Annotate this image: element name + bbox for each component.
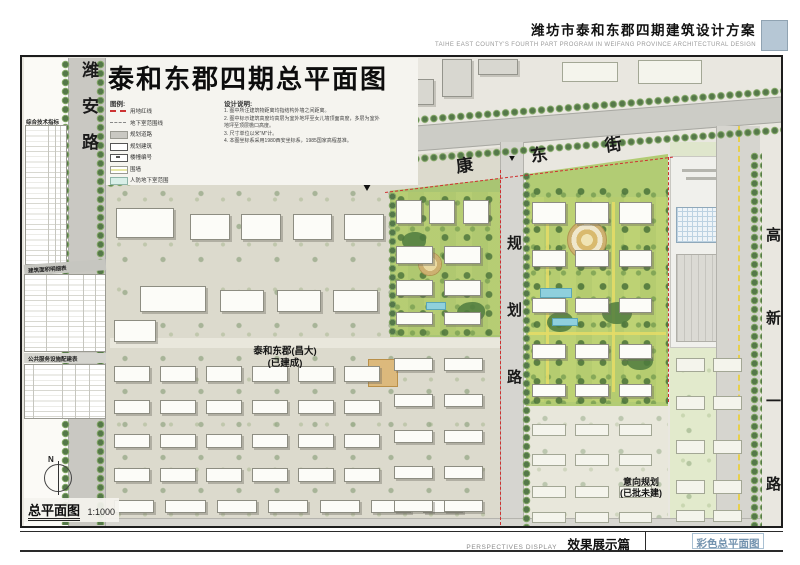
table-column-line — [46, 275, 47, 351]
building-footprint — [344, 400, 380, 414]
building-footprint — [140, 286, 206, 312]
building-footprint — [619, 454, 653, 466]
building-footprint — [114, 468, 150, 482]
building-number-icon — [110, 154, 128, 162]
notes-body: 1. 图中所注建筑物距离均指结构外墙之间距离。 2. 图中标示建筑高度均高层为室… — [224, 108, 384, 146]
building-footprint — [532, 424, 566, 436]
building-footprint — [575, 202, 609, 224]
scale-name: 总平面图 — [28, 503, 80, 521]
building-footprint — [444, 358, 483, 371]
building-footprint — [333, 290, 377, 312]
building-footprint — [575, 424, 609, 436]
legend-item: 地下室范围线 — [110, 119, 220, 128]
building-footprint — [532, 486, 566, 498]
sheet-title: 泰和东郡四期总平面图 — [108, 59, 388, 96]
footer-sheet-name-box: 彩色总平面图 — [692, 533, 764, 549]
civil-defense-icon — [110, 177, 128, 185]
building-footprint — [713, 510, 742, 522]
building-footprint — [160, 468, 196, 482]
table1-indicators — [25, 125, 67, 265]
building-footprint — [478, 59, 518, 75]
legend-item: 人防地下室范围 — [110, 176, 220, 185]
road-label-guihua: 规划路 — [503, 235, 524, 436]
building-footprint — [394, 358, 433, 371]
building-footprint — [532, 298, 566, 313]
building-footprint — [532, 384, 566, 397]
building-footprint — [320, 500, 360, 513]
building-footprint — [638, 60, 702, 84]
building-footprint — [532, 344, 566, 359]
basement-line-icon — [110, 122, 126, 123]
note-line: 3. 尺寸单位以米"M"计。 — [224, 131, 384, 139]
legend-item: 楼幢编号 — [110, 153, 220, 162]
building-footprint — [394, 394, 433, 407]
building-footprint — [444, 394, 483, 407]
building-footprint — [713, 396, 742, 410]
building-footprint — [676, 396, 705, 410]
planned-area-label: 意向规划 (已批未建) — [581, 477, 701, 500]
building-footprint — [298, 468, 334, 482]
wall-icon — [110, 166, 128, 174]
building-footprint — [619, 250, 653, 267]
building-footprint — [619, 344, 653, 359]
building-footprint — [220, 290, 264, 312]
building-footprint — [298, 434, 334, 448]
building-footprint — [619, 202, 653, 224]
drawing-sheet: 潍坊市泰和东郡四期建筑设计方案 TAIHE EAST COUNTY'S FOUR… — [0, 0, 800, 565]
note-line: 2. 图中标示建筑高度均高层为室外地坪至女儿墙顶面高度，多层为室外地坪至顶层檐口… — [224, 116, 384, 131]
road-label-weian: 潍安路 — [76, 61, 101, 169]
building-footprint — [344, 214, 384, 240]
note-line: 1. 图中所注建筑物距离均指结构外墙之间距离。 — [224, 108, 384, 116]
legend-item: 用地红线 — [110, 107, 220, 116]
compass-needle — [58, 461, 60, 495]
header-color-chip — [761, 20, 788, 51]
building-footprint — [394, 430, 433, 443]
building-footprint — [252, 400, 288, 414]
footer-series-cn: 效果展示篇 — [567, 538, 630, 552]
header-subtitle: TAIHE EAST COUNTY'S FOURTH PART PROGRAM … — [420, 42, 756, 48]
building-footprint — [619, 512, 653, 523]
building-footprint — [562, 62, 618, 82]
building-footprint — [206, 400, 242, 414]
building-footprint — [444, 430, 483, 443]
building-footprint — [114, 500, 154, 513]
compass: N — [44, 464, 72, 492]
building-footprint — [394, 466, 433, 479]
building-footprint — [116, 208, 174, 238]
table-column-line — [62, 365, 63, 418]
building-footprint — [293, 214, 333, 240]
building-footprint — [114, 400, 150, 414]
legend-item: 围墙 — [110, 165, 220, 174]
building-footprint — [532, 512, 566, 523]
table-column-line — [83, 275, 84, 351]
building-footprint — [396, 280, 433, 296]
building-footprint — [713, 440, 742, 454]
building-footprint — [575, 298, 609, 313]
building-footprint — [206, 434, 242, 448]
table-column-line — [60, 126, 61, 264]
building-footprint — [217, 500, 257, 513]
building-footprint — [298, 400, 334, 414]
building-footprint — [444, 500, 483, 512]
building-footprint — [676, 440, 705, 454]
building-footprint — [463, 200, 489, 224]
existing-estate-label: 泰和东郡(昌大) (已建成) — [205, 346, 365, 370]
footer-rule-top — [20, 531, 783, 532]
table2-areas — [24, 274, 106, 352]
legend-item: 规划道路 — [110, 130, 220, 139]
building-footprint — [575, 384, 609, 397]
road-label-gaoxin: 高新一路 — [762, 227, 783, 528]
table-column-line — [33, 365, 34, 418]
building-footprint — [277, 290, 321, 312]
building-footprint — [396, 312, 433, 325]
building-footprint — [442, 59, 472, 97]
building-footprint — [268, 500, 308, 513]
note-line: 4. 本图坐标系采用1980西安坐标系，1985国家高程基准。 — [224, 138, 384, 146]
scale-label: 总平面图 1:1000 — [24, 498, 119, 522]
plan-frame: 泰和东郡(昌大) (已建成) 意向规划 (已批未建) 主入口 潍安路 健康东街 … — [20, 55, 783, 528]
footer-divider — [645, 531, 646, 552]
building-footprint — [344, 468, 380, 482]
notes-title: 设计说明: — [224, 98, 252, 108]
building-footprint — [160, 366, 196, 382]
legend-item: 规划建筑 — [110, 142, 220, 151]
compass-north-label: N — [48, 455, 54, 464]
building-footprint — [713, 480, 742, 494]
building-footprint — [429, 200, 455, 224]
scale-ratio: 1:1000 — [87, 507, 115, 517]
building-footprint — [394, 500, 433, 512]
building-footprint — [444, 466, 483, 479]
building-footprint — [160, 400, 196, 414]
building-footprint — [532, 454, 566, 466]
building-footprint — [575, 344, 609, 359]
building-footprint — [165, 500, 205, 513]
planned-building-icon — [110, 143, 128, 151]
header-block: 潍坊市泰和东郡四期建筑设计方案 TAIHE EAST COUNTY'S FOUR… — [420, 19, 756, 48]
building-footprint — [713, 358, 742, 372]
building-footprint — [396, 246, 433, 264]
building-footprint — [575, 512, 609, 523]
building-footprint — [114, 434, 150, 448]
building-footprint — [206, 468, 242, 482]
table-column-line — [95, 275, 96, 351]
table-column-line — [75, 365, 76, 418]
building-footprint — [160, 434, 196, 448]
building-footprint — [114, 366, 150, 382]
building-footprint — [396, 200, 422, 224]
building-footprint — [444, 246, 481, 264]
building-footprint — [241, 214, 281, 240]
building-footprint — [252, 434, 288, 448]
building-footprint — [444, 312, 481, 325]
table3-title-band: 公共服务设施配建表 — [24, 353, 106, 363]
building-footprint — [532, 202, 566, 224]
building-footprint — [575, 454, 609, 466]
building-footprint — [252, 468, 288, 482]
table-column-line — [55, 126, 56, 264]
planned-road-icon — [110, 131, 128, 139]
building-footprint — [532, 250, 566, 267]
building-footprint — [190, 214, 230, 240]
building-footprint — [619, 384, 653, 397]
table3-facilities — [24, 364, 106, 419]
table-column-line — [89, 365, 90, 418]
footer-series-en: PERSPECTIVES DISPLAY — [466, 544, 557, 551]
building-footprint — [676, 358, 705, 372]
red-boundary-icon — [110, 110, 126, 112]
building-footprint — [676, 510, 705, 522]
header-title: 潍坊市泰和东郡四期建筑设计方案 — [420, 19, 756, 39]
main-entrance-marker — [363, 184, 371, 191]
building-footprint — [619, 424, 653, 436]
building-footprint — [444, 280, 481, 296]
building-footprint — [575, 250, 609, 267]
building-footprint — [344, 434, 380, 448]
footer-series: PERSPECTIVES DISPLAY 效果展示篇 — [370, 534, 630, 554]
table-column-line — [48, 126, 49, 264]
building-footprint — [114, 320, 156, 342]
building-footprint — [619, 298, 653, 313]
table-column-line — [68, 275, 69, 351]
footer-sheet-name: 彩色总平面图 — [697, 538, 760, 550]
